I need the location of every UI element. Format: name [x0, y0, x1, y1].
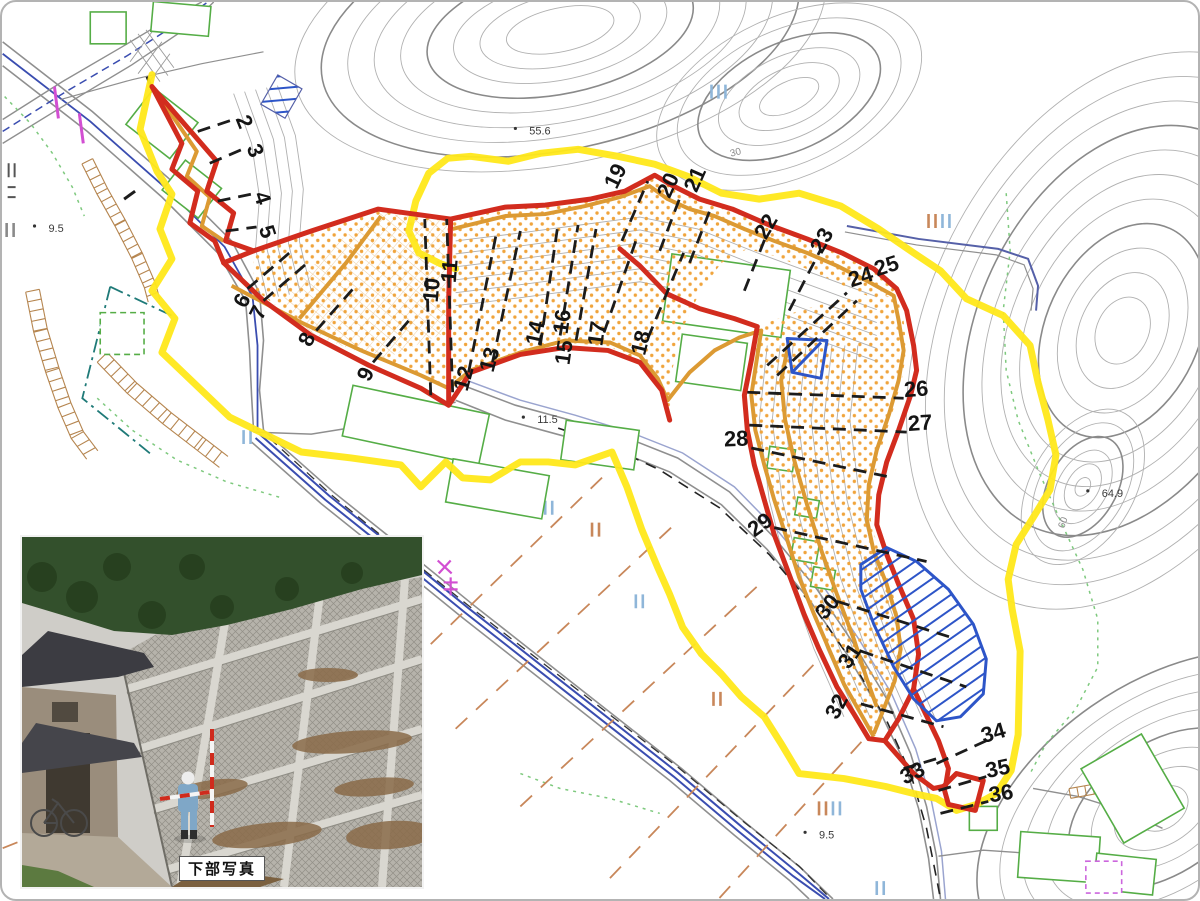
section-line [218, 194, 252, 201]
inset-photo: 下部写真 [22, 537, 422, 887]
spot-elevation-dot [803, 831, 806, 834]
contour [953, 135, 1198, 526]
edge-marks [8, 163, 16, 197]
section-number: 27 [907, 409, 933, 436]
embankment-hatch [97, 353, 228, 468]
slope-photo [22, 537, 422, 887]
contour [1006, 196, 1198, 465]
section-number: 5 [254, 222, 282, 241]
house-window [52, 702, 78, 722]
section-number: 15 [550, 339, 578, 367]
purple-parcel [1086, 861, 1122, 893]
green-dotted-boundary [5, 97, 85, 216]
teal-boundary [82, 287, 172, 455]
green-dotted-boundary [97, 398, 281, 498]
road [3, 54, 258, 430]
paddy-marker [592, 523, 599, 537]
contour [1084, 288, 1160, 373]
section-number: 16 [548, 308, 576, 336]
green-dotted-boundary [520, 774, 659, 814]
road [60, 52, 263, 100]
contour-elevation: 60 [1057, 515, 1071, 530]
paddy-marker [877, 881, 884, 895]
spot-elevation: 64.9 [1102, 488, 1123, 500]
section-number: 29 [743, 507, 777, 542]
spot-elevation: 55.6 [529, 125, 550, 137]
photo-caption: 下部写真 [179, 856, 265, 881]
spot-elevation-dot [514, 127, 517, 130]
contour [473, 2, 648, 82]
paddy-marker [833, 801, 840, 815]
map-card: 2345678910111213141516171819202122232425… [0, 0, 1200, 901]
spot-elevation-dot [1086, 489, 1089, 492]
building [446, 459, 550, 519]
section-number: 17 [582, 320, 610, 348]
section-number: 34 [978, 717, 1009, 748]
helmet [182, 772, 195, 785]
building [676, 334, 748, 390]
section-line [198, 119, 234, 131]
spot-elevation-dot [522, 416, 525, 419]
building [90, 12, 126, 44]
contour [703, 28, 875, 166]
paddy-marker [244, 430, 251, 444]
section-number: 26 [903, 375, 929, 402]
paddy-marker [929, 214, 936, 228]
building [100, 313, 144, 355]
magenta-ticks [54, 87, 83, 144]
paddy-marker [819, 801, 826, 815]
contour [502, 2, 618, 63]
contour-elevation: 30 [729, 146, 743, 160]
section-number: 4 [249, 188, 277, 208]
embankment-hatch [82, 159, 160, 303]
section-number: 11 [436, 259, 463, 284]
contour [385, 2, 735, 140]
contour [754, 70, 824, 124]
paddy-marker [545, 501, 552, 515]
spot-elevation: 9.5 [819, 829, 834, 841]
paddy-marker [636, 594, 643, 608]
section-number: 36 [987, 779, 1015, 808]
embankment-hatch [26, 289, 98, 459]
paddy-marker [713, 692, 720, 706]
spot-elevation: 11.5 [537, 414, 557, 426]
building [151, 2, 211, 36]
spot-elevation: 9.5 [48, 223, 63, 235]
paddy-marker [7, 223, 14, 237]
section-number: 28 [724, 426, 749, 452]
spot-elevation-dot [33, 224, 36, 227]
paddy-marker [942, 214, 949, 228]
contour [298, 2, 823, 197]
field-boundary [719, 734, 868, 898]
contour [1058, 257, 1187, 403]
section-number: 2 [231, 111, 259, 132]
building [342, 385, 489, 465]
contour [444, 2, 677, 101]
field-boundary [520, 584, 759, 806]
